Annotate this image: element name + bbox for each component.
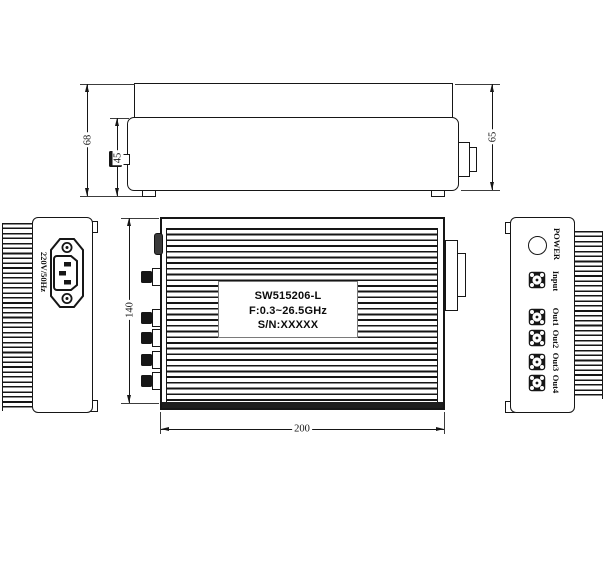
out4-label: Out4 — [551, 375, 561, 393]
power-label: POWER — [552, 228, 562, 260]
dim-label-65: 65 — [488, 130, 499, 145]
power-indicator-side-tab — [154, 233, 163, 255]
side-foot-right — [431, 190, 445, 197]
left-panel-fins — [2, 223, 32, 411]
extension-line — [461, 190, 500, 191]
input-rf-connector-icon — [528, 271, 546, 289]
side-view-body — [127, 117, 459, 191]
dim-label-140: 140 — [125, 300, 136, 320]
technical-drawing: 68 45 65 SW515206-L F:0.3~26.5GHz S/N:XX… — [0, 0, 610, 563]
out4-rf-connector-icon — [528, 374, 546, 392]
voltage-rating-label: 220V/50Hz — [39, 252, 49, 292]
dim-label-200: 200 — [292, 424, 312, 435]
out3-rf-connector-icon — [528, 353, 546, 371]
product-frequency: F:0.3~26.5GHz — [219, 304, 357, 319]
product-model: SW515206-L — [219, 289, 357, 304]
extension-line — [444, 412, 445, 434]
arrow-up-icon — [85, 84, 89, 92]
product-serial: S/N:XXXXX — [219, 318, 357, 333]
dim-label-45: 45 — [113, 151, 124, 166]
out1-rf-connector-icon — [528, 308, 546, 326]
arrow-down-icon — [85, 188, 89, 196]
arrow-down-icon — [115, 188, 119, 196]
arrow-up-icon — [490, 84, 494, 92]
out1-label: Out1 — [551, 308, 561, 326]
front-right-bracket-inner — [457, 253, 466, 297]
extension-line — [110, 118, 129, 119]
extension-line — [80, 196, 142, 197]
product-label: SW515206-L F:0.3~26.5GHz S/N:XXXXX — [218, 281, 358, 338]
side-foot-left — [142, 190, 156, 197]
out2-label: Out2 — [551, 330, 561, 348]
right-panel-fins — [575, 231, 603, 399]
power-inlet-icon — [50, 238, 84, 308]
side-view-lid — [134, 83, 453, 118]
out3-label: Out3 — [551, 353, 561, 371]
dim-label-68: 68 — [83, 133, 94, 148]
extension-line — [121, 403, 159, 404]
front-base-band — [162, 402, 443, 408]
arrow-right-icon — [436, 427, 444, 431]
arrow-down-icon — [127, 395, 131, 403]
power-indicator-icon — [528, 236, 547, 255]
arrow-left-icon — [161, 427, 169, 431]
arrow-up-icon — [115, 118, 119, 126]
input-label: Input — [551, 271, 561, 291]
out2-rf-connector-icon — [528, 329, 546, 347]
arrow-down-icon — [490, 182, 494, 190]
side-right-bracket-inner — [469, 147, 477, 172]
arrow-up-icon — [127, 218, 131, 226]
